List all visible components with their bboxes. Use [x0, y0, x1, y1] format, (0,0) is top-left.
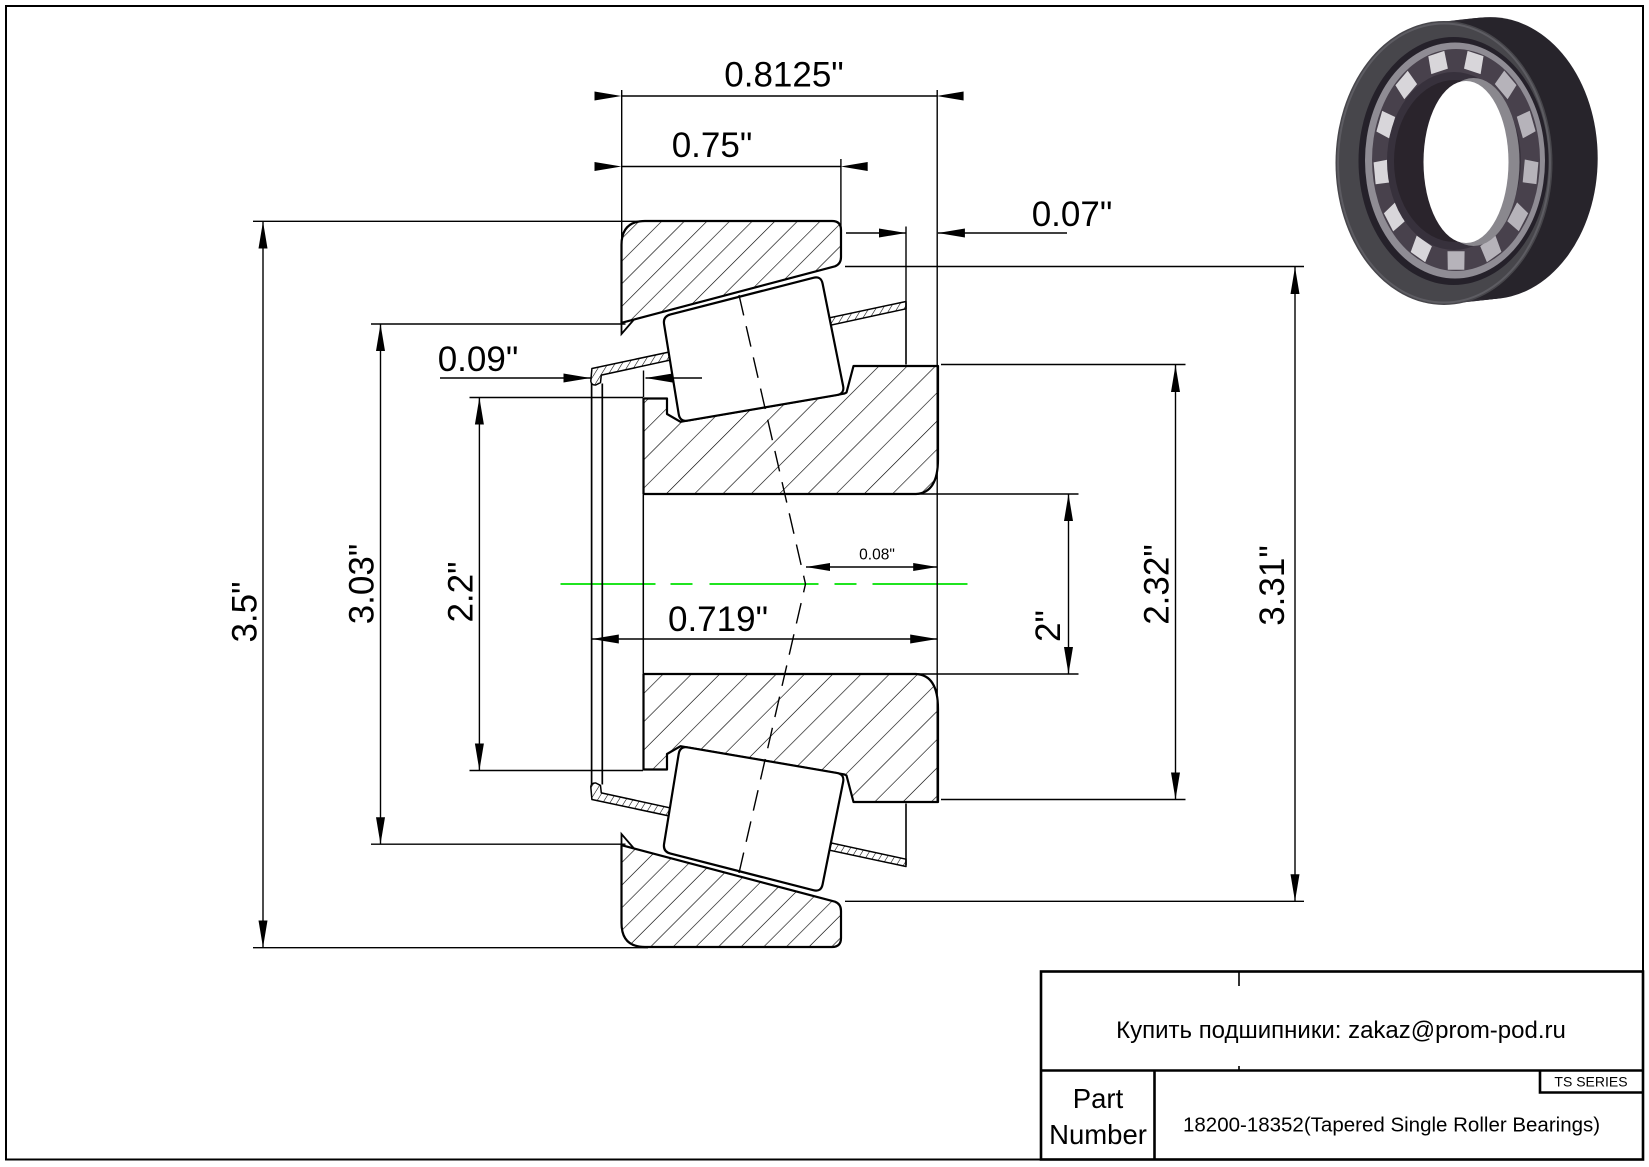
- svg-text:0.08": 0.08": [859, 547, 895, 564]
- svg-text:2": 2": [1029, 610, 1068, 642]
- svg-text:0.75": 0.75": [672, 126, 753, 165]
- svg-text:Number: Number: [1049, 1119, 1147, 1150]
- svg-text:3.31": 3.31": [1253, 545, 1292, 626]
- svg-text:0.8125": 0.8125": [724, 56, 843, 95]
- svg-text:0.07": 0.07": [1032, 195, 1113, 234]
- svg-text:0.09": 0.09": [438, 340, 519, 379]
- svg-text:3.03": 3.03": [343, 544, 382, 625]
- svg-text:2.2": 2.2": [442, 561, 481, 622]
- svg-text:18200-18352(Tapered Single Rol: 18200-18352(Tapered Single Roller Bearin…: [1183, 1114, 1600, 1137]
- svg-text:Part: Part: [1073, 1083, 1124, 1114]
- svg-text:0.719": 0.719": [668, 600, 768, 639]
- svg-text:TS SERIES: TS SERIES: [1554, 1074, 1627, 1090]
- svg-text:3.5": 3.5": [226, 581, 265, 642]
- svg-text:2.32": 2.32": [1138, 544, 1177, 625]
- svg-text:Купить подшипники: zakaz@prom-: Купить подшипники: zakaz@prom-pod.ru: [1116, 1017, 1566, 1044]
